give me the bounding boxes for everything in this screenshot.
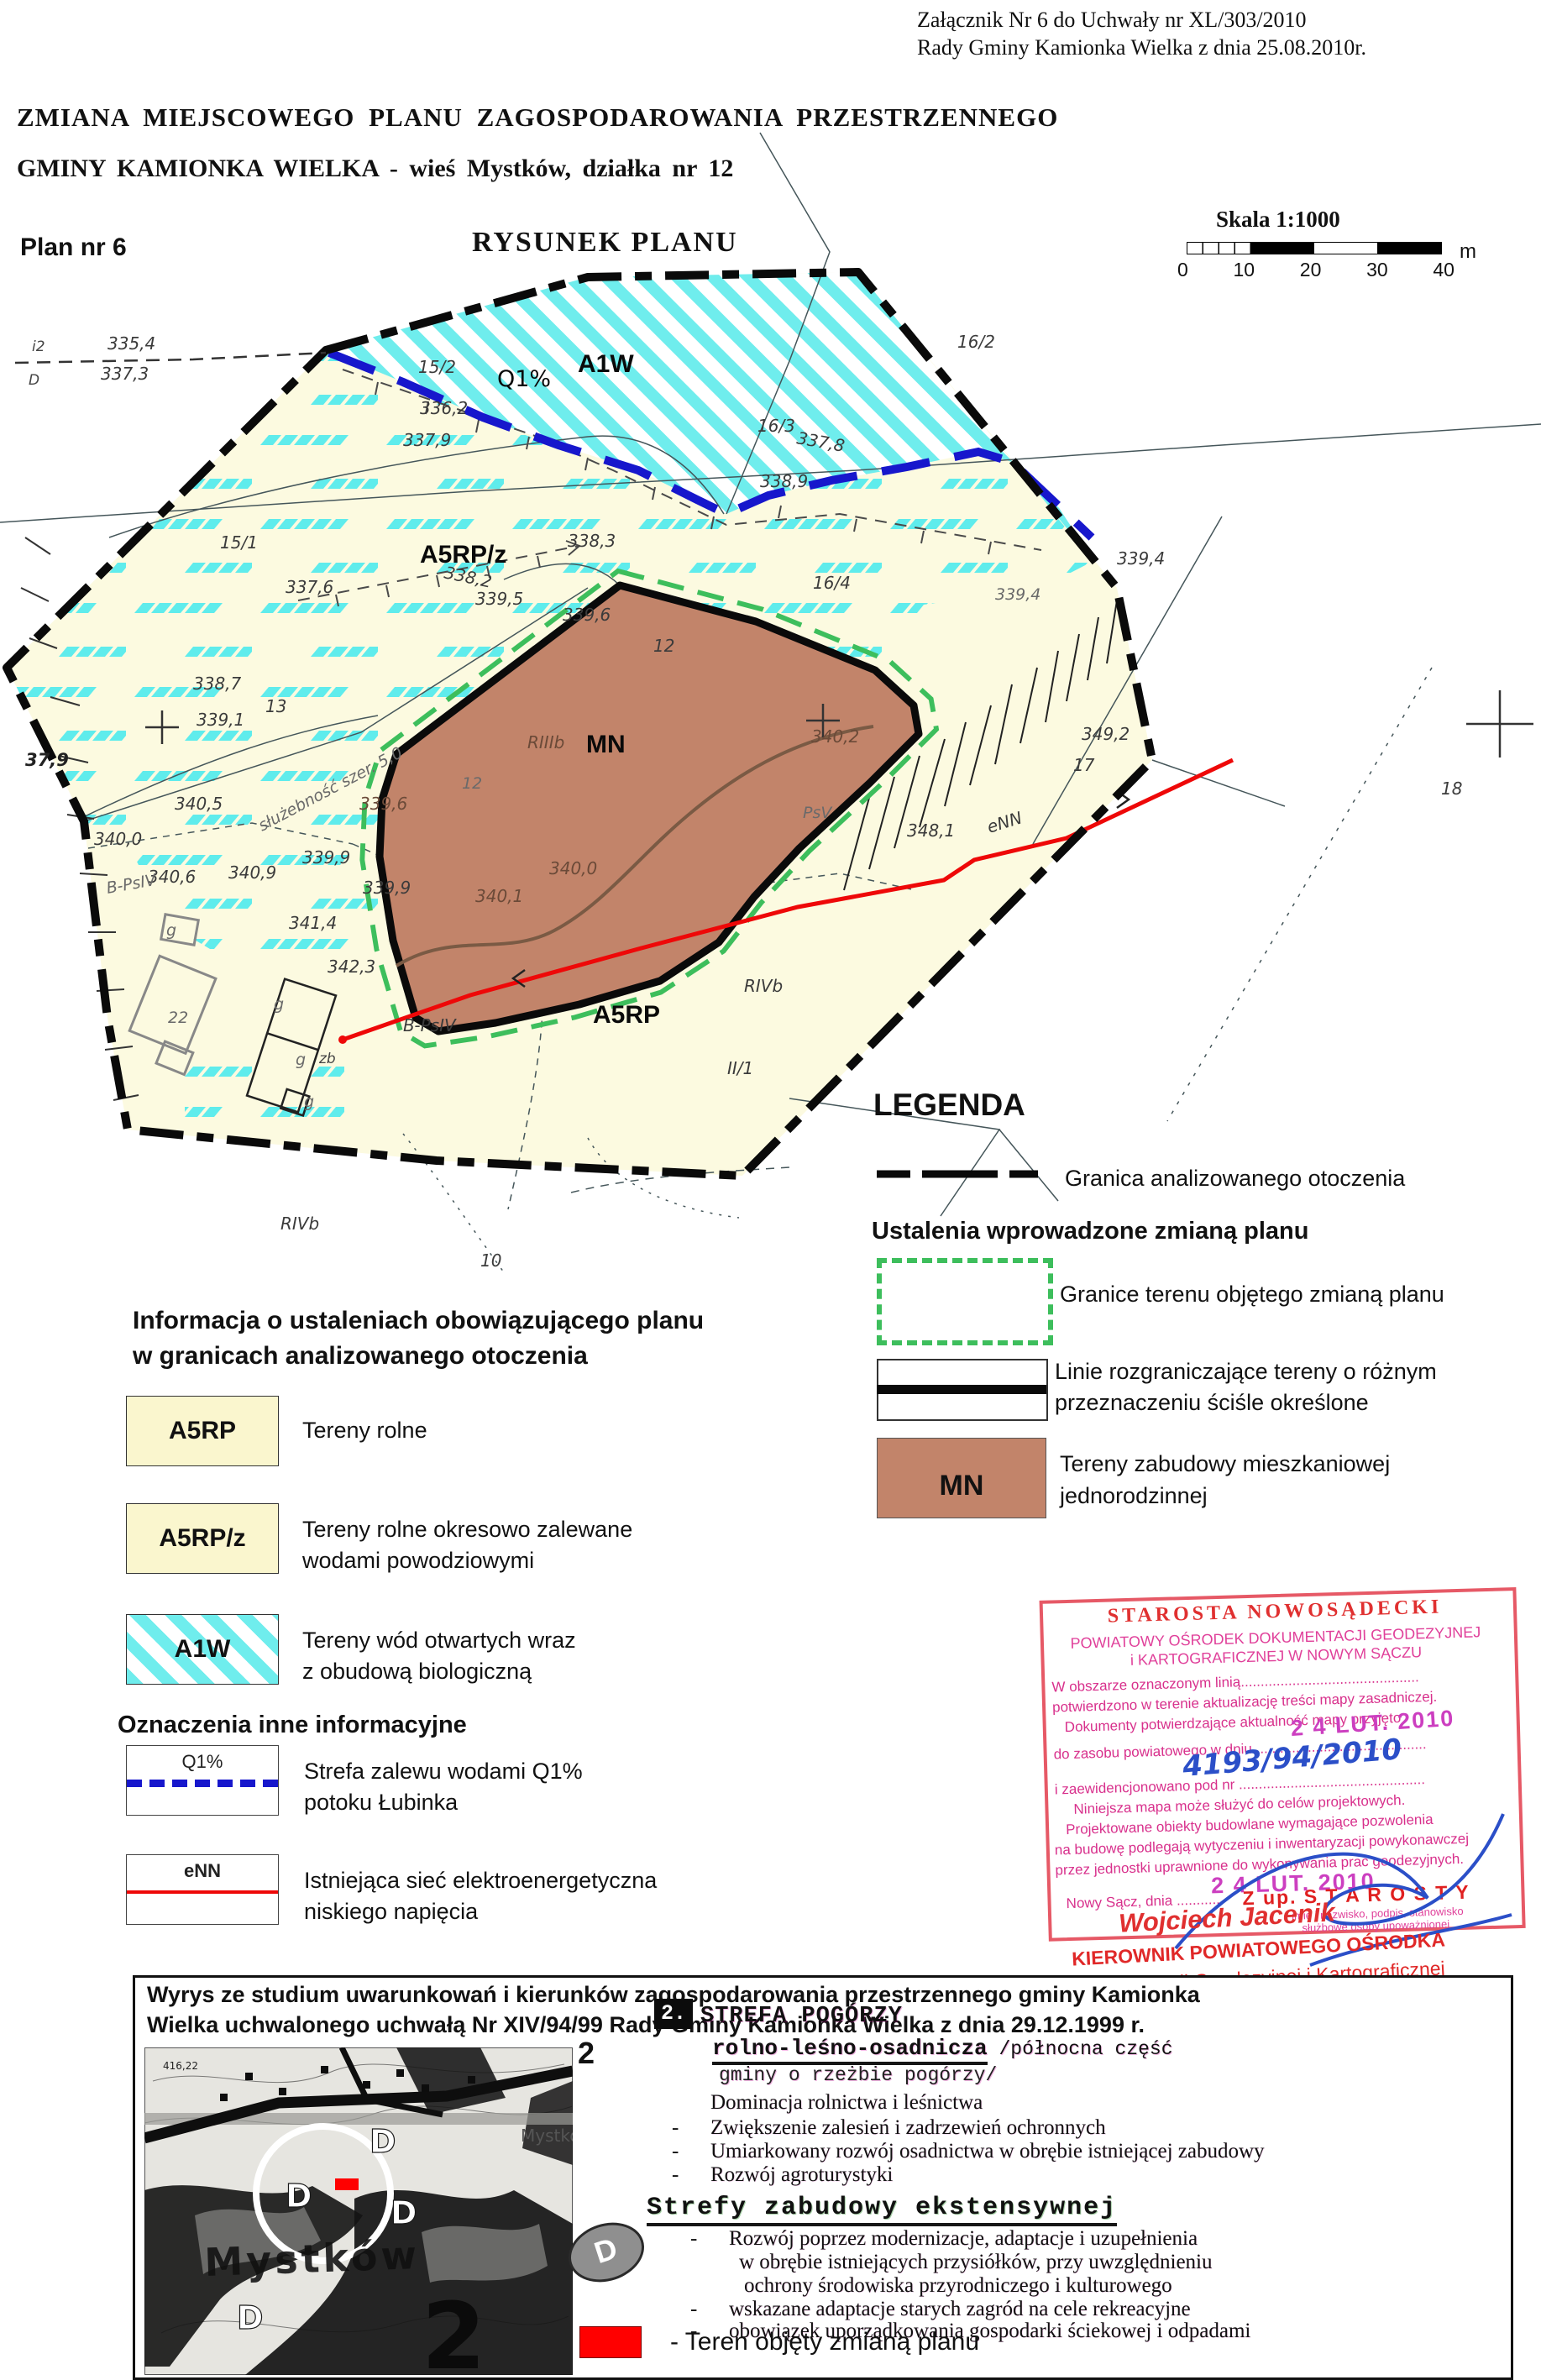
info-a5rpz-desc1: Tereny rolne okresowo zalewane	[302, 1517, 632, 1543]
red-change-area-swatch	[579, 2326, 642, 2358]
map-label: 16/2	[957, 332, 995, 352]
study-bullet: Umiarkowany rozwój osadnictwa w obrębie …	[710, 2140, 1265, 2163]
scale-ticks: 0 10 20 30 40	[1177, 259, 1455, 281]
info-q1-desc1: Strefa zalewu wodami Q1%	[304, 1759, 583, 1785]
map-label: 12	[653, 636, 674, 656]
info-heading-line1: Informacja o ustaleniach obowiązującego …	[133, 1307, 704, 1335]
scale-label: Skala 1:1000	[1216, 207, 1340, 233]
plan-document-page: { "page": { "attachment_note1": "Załączn…	[0, 0, 1541, 2378]
map-label: 336,2	[420, 398, 468, 418]
info-q1-desc2: potoku Łubinka	[304, 1790, 458, 1816]
info-heading2: Oznaczenia inne informacyjne	[118, 1712, 467, 1739]
map-label: 342,3	[328, 957, 375, 977]
map-label: 18	[1441, 778, 1462, 799]
strefy-title: Strefy zabudowy ekstensywnej	[647, 2194, 1117, 2222]
map-label: 22	[168, 1009, 188, 1027]
info-a5rp-desc: Tereny rolne	[302, 1418, 427, 1444]
info-q1-code: Q1%	[127, 1751, 278, 1773]
map-label: g	[296, 1051, 306, 1069]
bullet-dash: -	[672, 2163, 679, 2187]
map-label: 335,4	[107, 333, 155, 354]
study-d-letter: D	[390, 2194, 417, 2231]
study-d-letter: D	[370, 2123, 396, 2160]
q1-label: Q1%	[497, 366, 551, 392]
info-enn-symbol: eNN	[126, 1854, 279, 1925]
map-label: 337,3	[101, 364, 149, 384]
map-label: 15/1	[220, 532, 258, 553]
study-zone-number: 2	[578, 2036, 595, 2071]
map-label: RIVb	[744, 976, 783, 996]
map-label: 340,0	[549, 858, 597, 878]
legend-boundary-symbol	[877, 1167, 1053, 1181]
map-label: i2	[32, 338, 45, 355]
info-a1w-symbol: A1W	[126, 1614, 279, 1685]
map-label: 337,6	[286, 577, 333, 597]
q1-line-swatch	[127, 1780, 278, 1787]
map-label: 339,6	[563, 605, 611, 625]
map-label: 340,9	[228, 862, 276, 883]
study-zone-number-big: 2	[422, 2283, 486, 2375]
study-header-line2: Wielka uchwalonego uchwałą Nr XIV/94/99 …	[147, 2012, 1145, 2038]
map-label: 339,5	[475, 589, 523, 609]
legend-item-mn-2: jednorodzinnej	[1060, 1483, 1208, 1509]
scale-tick: 20	[1300, 259, 1322, 281]
study-bullet: w obrębie istniejących przysiółków, przy…	[739, 2251, 1213, 2274]
study-bullet: Zwiększenie zalesień i zadrzewień ochron…	[710, 2116, 1106, 2140]
strefa-subtitle-suffix: /północna część	[988, 2038, 1173, 2060]
attachment-note: Załącznik Nr 6 do Uchwały nr XL/303/2010…	[917, 7, 1530, 61]
strefa-subtitle-underlined: rolno-leśno-osadnicza	[712, 2036, 988, 2065]
document-title-line2: GMINY KAMIONKA WIELKA - wieś Mystków, dz…	[17, 155, 733, 183]
map-label: 340,1	[475, 886, 523, 906]
strefa-number-box: 2.	[654, 1999, 693, 2029]
info-a1w-desc2: z obudową biologiczną	[302, 1659, 532, 1685]
scale-bar	[1187, 242, 1442, 254]
study-bullet: Rozwój poprzez modernizacje, adaptacje i…	[729, 2227, 1198, 2251]
map-label: B-PsIV	[403, 1015, 457, 1035]
legend-green-dashed-symbol	[877, 1258, 1053, 1345]
map-label: 339,6	[359, 794, 407, 814]
drawing-title: RYSUNEK PLANU	[472, 227, 738, 259]
map-label: 13	[265, 696, 286, 716]
map-label: II/1	[727, 1058, 753, 1078]
document-title-line1: ZMIANA MIEJSCOWEGO PLANU ZAGOSPODAROWANI…	[17, 102, 1058, 133]
map-label: 15/2	[418, 357, 456, 377]
legend-section-heading: Ustalenia wprowadzone zmianą planu	[872, 1218, 1309, 1245]
legend-item-dividing-lines-1: Linie rozgraniczające tereny o różnym	[1055, 1359, 1437, 1385]
enn-line-swatch	[127, 1890, 278, 1894]
study-d-letter: D	[286, 2178, 312, 2215]
map-label: RIIIb	[527, 732, 564, 752]
zone-label-a1w: A1W	[578, 350, 634, 378]
legend-title: LEGENDA	[873, 1088, 1025, 1123]
mystkow-label-big: Mystków	[203, 2232, 420, 2285]
legend-item-change-boundary: Granice terenu objętego zmianą planu	[1060, 1282, 1444, 1308]
legend-mn-symbol: MN	[877, 1438, 1046, 1518]
study-bullet: Dominacja rolnictwa i leśnictwa	[710, 2091, 983, 2115]
info-a1w-desc1: Tereny wód otwartych wraz	[302, 1628, 576, 1654]
study-bullet: Rozwój agroturystyki	[710, 2163, 893, 2187]
attachment-note-line1: Załącznik Nr 6 do Uchwały nr XL/303/2010	[917, 7, 1530, 34]
map-label: 339,4	[995, 585, 1040, 604]
study-bullet: ochrony środowiska przyrodniczego i kult…	[744, 2274, 1172, 2298]
study-d-letter: D	[237, 2299, 264, 2336]
info-a5rpz-desc2: wodami powodziowymi	[302, 1548, 534, 1574]
legend-item-dividing-lines-2: przeznaczeniu ściśle określone	[1055, 1390, 1369, 1416]
bullet-dash: -	[690, 2227, 697, 2251]
map-label: 10	[480, 1250, 501, 1271]
red-legend-text: - Teren objęty zmianą planu	[670, 2328, 979, 2356]
strefa-subtitle2: gminy o rzeżbie pogórzy/	[719, 2064, 997, 2086]
map-label: 340,0	[94, 829, 142, 849]
zone-label-mn: MN	[586, 731, 626, 758]
map-label: 339,9	[363, 878, 411, 898]
study-bullet: wskazane adaptacje starych zagród na cel…	[729, 2298, 1191, 2321]
zone-label-a5rp: A5RP	[593, 1001, 660, 1029]
info-enn-desc2: niskiego napięcia	[304, 1899, 478, 1925]
legend-dividing-line-symbol	[877, 1359, 1048, 1421]
scale-tick: 10	[1234, 259, 1255, 281]
info-enn-desc1: Istniejąca sieć elektroenergetyczna	[304, 1868, 657, 1894]
plan-map-drawing: A1W A5RP/z A5RP MN Q1% eNN i2 335,4 337,…	[0, 0, 1541, 1276]
map-label: 349,2	[1082, 724, 1130, 744]
map-label: 17	[1073, 755, 1095, 775]
info-heading-line2: w granicach analizowanego otoczenia	[133, 1342, 588, 1371]
map-label: PsV	[803, 804, 833, 822]
info-a5rpz-symbol: A5RP/z	[126, 1503, 279, 1574]
bullet-dash: -	[690, 2298, 697, 2321]
map-label: 340,2	[811, 726, 859, 747]
plan-number: Plan nr 6	[20, 233, 127, 262]
map-label: 12	[462, 774, 482, 793]
map-label: 339,1	[197, 710, 244, 730]
map-label: g	[304, 1093, 314, 1111]
scale-tick: 30	[1366, 259, 1388, 281]
info-enn-code: eNN	[127, 1860, 278, 1882]
map-label: 338,7	[193, 674, 242, 694]
map-label: RIVb	[280, 1214, 319, 1234]
ditch-line	[15, 353, 326, 363]
scale-unit: m	[1460, 240, 1476, 264]
map-label: 16/3	[757, 416, 795, 436]
study-topo-map: D D D D Mystków Mystków 416,22 2	[144, 2047, 573, 2375]
map-label: 37,9	[25, 750, 69, 770]
scale-bar-segment	[1377, 243, 1441, 254]
mystkow-label-gray: Mystków	[521, 2126, 573, 2146]
map-label: 339,4	[1117, 548, 1165, 569]
map-label: 337,9	[403, 430, 451, 450]
legend-item-boundary: Granica analizowanego otoczenia	[1065, 1166, 1405, 1192]
strefa-subtitle: rolno-leśno-osadnicza /północna część	[712, 2036, 1173, 2061]
elevation-416: 416,22	[163, 2060, 198, 2072]
map-label: 339,9	[302, 847, 350, 868]
bullet-dash: -	[672, 2140, 679, 2163]
info-q1-symbol: Q1%	[126, 1745, 279, 1816]
map-label: zb	[318, 1051, 336, 1067]
scale-tick: 40	[1433, 259, 1455, 281]
scale-bar-segment	[1313, 243, 1378, 254]
map-label: g	[274, 995, 284, 1014]
scale-bar-segment	[1187, 243, 1250, 254]
legend-item-mn-1: Tereny zabudowy mieszkaniowej	[1060, 1451, 1390, 1477]
scale-tick: 0	[1177, 259, 1188, 281]
scale-bar-segment	[1250, 243, 1313, 254]
map-label: 338,3	[568, 531, 616, 551]
map-label: 340,5	[175, 794, 223, 814]
map-label: g	[166, 921, 176, 940]
strefy-title-text: Strefy zabudowy ekstensywnej	[647, 2194, 1117, 2226]
change-area-marker	[335, 2178, 359, 2190]
map-label: D	[29, 372, 39, 389]
map-label: 338,9	[760, 471, 808, 491]
strefa-title: STREFA POGÓRZY	[700, 2004, 903, 2029]
map-label: 341,4	[289, 913, 337, 933]
map-label: 348,1	[907, 820, 955, 841]
bullet-dash: -	[672, 2116, 679, 2140]
map-label: 16/4	[813, 573, 851, 593]
info-a5rp-symbol: A5RP	[126, 1396, 279, 1466]
attachment-note-line2: Rady Gminy Kamionka Wielka z dnia 25.08.…	[917, 34, 1530, 62]
zone-label-a5rpz: A5RP/z	[420, 541, 506, 569]
